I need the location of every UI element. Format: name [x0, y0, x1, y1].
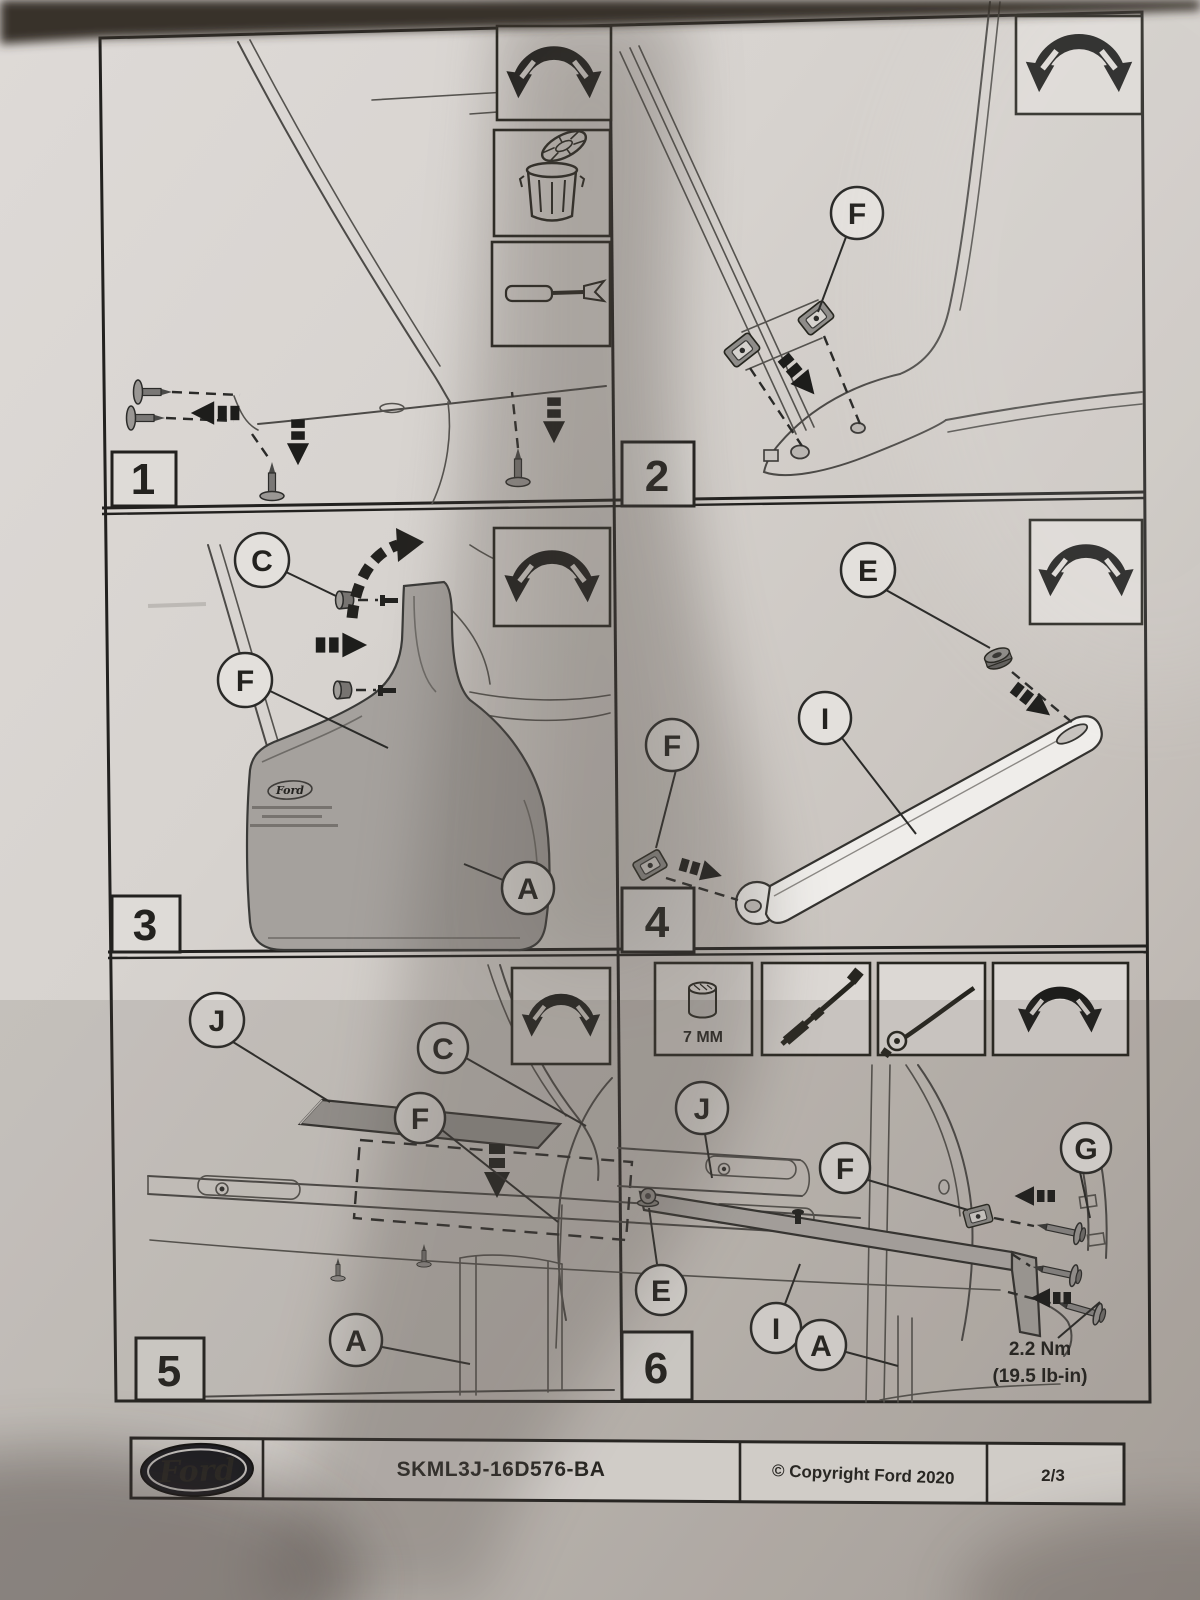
step-number-box: 6 [622, 1332, 692, 1400]
step-number: 4 [645, 898, 670, 947]
footer-bar: Ford SKML3J-16D576-BA © Copyright Ford 2… [131, 1438, 1124, 1504]
callout-letter-f: F [411, 1103, 429, 1136]
socket-size-label: 7 MM [683, 1029, 723, 1046]
callout-letter-c: C [432, 1033, 454, 1066]
callout-letter-j: J [694, 1093, 711, 1126]
icon-box-rotate [494, 528, 610, 626]
callout-letter-i: I [772, 1313, 780, 1346]
callout-letter-g: G [1074, 1133, 1097, 1166]
callout-letter-e: E [651, 1275, 671, 1308]
torque-value: 2.2 Nm [1009, 1339, 1071, 1360]
callout-letter-a: A [810, 1330, 832, 1363]
step-number-box: 5 [136, 1338, 204, 1400]
icon-box-rotate [1016, 16, 1142, 114]
icon-box-rotate [512, 968, 610, 1064]
step-number: 1 [131, 455, 155, 504]
step-number: 5 [157, 1347, 181, 1396]
step-number-box: 2 [622, 442, 694, 506]
part-number: SKML3J-16D576-BA [397, 1458, 606, 1481]
icon-box-rotate [1030, 520, 1142, 624]
callout-letter-j: J [209, 1005, 226, 1038]
callout-letter-f: F [848, 198, 866, 231]
step-number: 2 [645, 452, 669, 501]
step-number-box: 3 [112, 896, 180, 952]
step-number: 3 [133, 901, 157, 950]
page-indicator: 2/3 [1041, 1466, 1065, 1485]
icon-box-discard [494, 125, 610, 236]
step-number: 6 [644, 1344, 668, 1393]
instruction-sheet: 1 F 2 [0, 0, 1200, 1600]
icon-box-rotate [497, 26, 611, 120]
flap-logo-text: Ford [275, 784, 304, 797]
tool-box-ratchet [878, 963, 985, 1058]
icon-box-trim-tool [492, 242, 610, 346]
tool-box-torque-wrench [762, 963, 870, 1055]
step-number-box: 1 [112, 452, 176, 506]
callout-letter-f: F [836, 1153, 854, 1186]
instruction-sheet-photo: 1 F 2 [0, 0, 1200, 1600]
callout-letter-f: F [236, 665, 254, 698]
torque-detail: (19.5 lb-in) [992, 1366, 1087, 1387]
icon-box-rotate [993, 963, 1128, 1055]
callout-letter-a: A [517, 873, 539, 906]
7mm-socket-icon [689, 983, 716, 1018]
callout-letter-c: C [251, 545, 273, 578]
callout-letter-e: E [858, 555, 878, 588]
callout-letter-a: A [345, 1325, 367, 1358]
step-number-box: 4 [622, 888, 694, 952]
ford-logo-text: Ford [157, 1453, 236, 1491]
callout-letter-f: F [663, 730, 681, 763]
tool-box-socket: 7 MM [655, 963, 752, 1055]
callout-letter-i: I [821, 703, 829, 736]
